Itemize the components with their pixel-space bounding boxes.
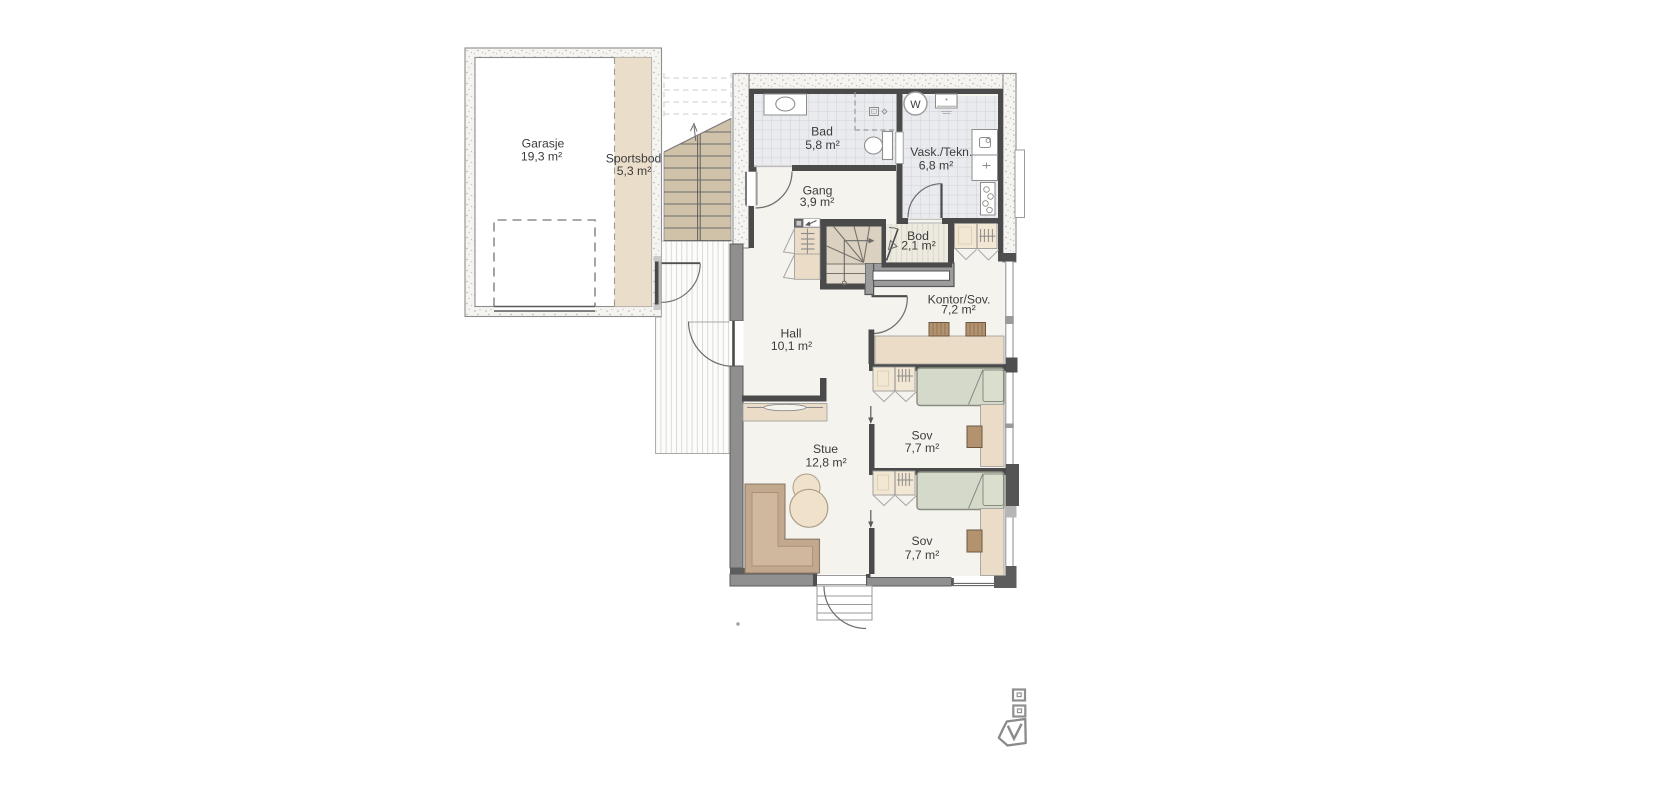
svg-text:Sov: Sov (911, 534, 933, 548)
svg-text:19,3 m²: 19,3 m² (521, 150, 562, 164)
svg-text:2,1 m²: 2,1 m² (901, 239, 936, 253)
svg-text:7,2 m²: 7,2 m² (941, 303, 976, 317)
svg-text:7,7 m²: 7,7 m² (905, 548, 940, 562)
svg-text:5,3 m²: 5,3 m² (617, 164, 652, 178)
svg-text:7,7 m²: 7,7 m² (905, 441, 940, 455)
svg-text:3,9 m²: 3,9 m² (800, 195, 835, 209)
svg-text:6,8 m²: 6,8 m² (919, 158, 954, 172)
svg-text:5,8 m²: 5,8 m² (805, 138, 840, 152)
svg-text:Stue: Stue (813, 442, 838, 456)
svg-text:Vask./Tekn.: Vask./Tekn. (910, 145, 972, 159)
svg-text:Bad: Bad (811, 125, 833, 139)
svg-text:12,8 m²: 12,8 m² (805, 456, 846, 470)
svg-text:W: W (910, 99, 921, 111)
svg-text:10,1 m²: 10,1 m² (771, 339, 812, 353)
svg-text:Garasje: Garasje (522, 137, 565, 151)
